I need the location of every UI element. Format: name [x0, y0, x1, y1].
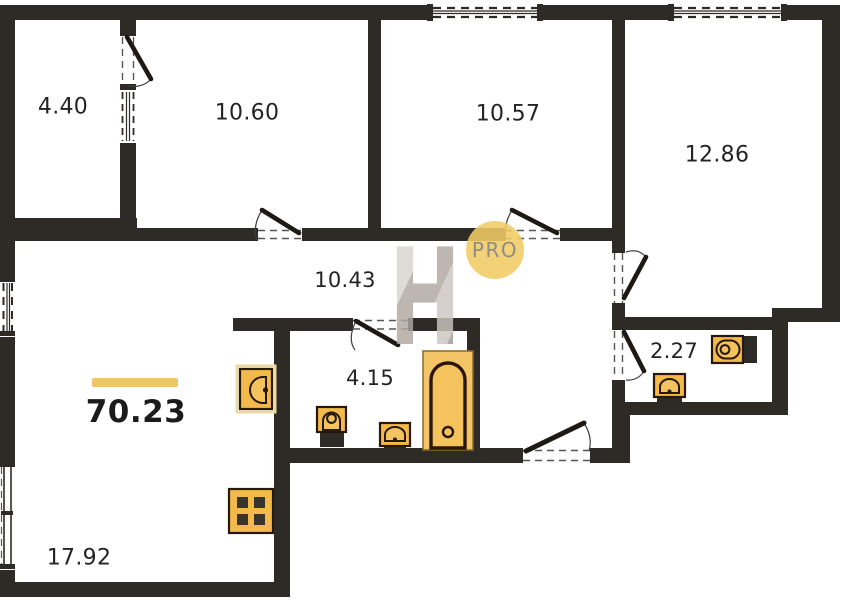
room-area-label-wc: 2.27 [650, 339, 698, 363]
window-icon [0, 462, 15, 569]
wc-washbasin-icon [712, 336, 757, 363]
stove-icon [229, 489, 273, 533]
pro-badge: PRO [466, 221, 524, 279]
window-icon [668, 4, 787, 21]
window-icon [123, 92, 134, 141]
washbasin-icon [380, 423, 410, 449]
pro-badge-label: PRO [472, 238, 518, 262]
room-area-label-living: 17.92 [47, 546, 111, 571]
door-icon [123, 37, 152, 86]
fixtures [229, 336, 757, 533]
door-icon [255, 210, 302, 240]
door-icon [615, 331, 645, 380]
room-area-label-bedroom-1: 10.60 [215, 101, 279, 126]
total-area-label: 70.23 [86, 394, 187, 430]
floor-plan: H 4.40 10.60 10.57 12.86 10.43 4.15 2.27… [0, 0, 843, 600]
room-area-label-loggia: 4.40 [38, 95, 88, 120]
entrance-door-icon [523, 423, 590, 461]
toilet-icon [317, 407, 346, 447]
room-area-label-bathroom: 4.15 [346, 366, 394, 390]
window-icon [0, 277, 15, 336]
wc-toilet-icon [654, 374, 685, 402]
window-icon [427, 4, 543, 21]
room-area-label-hallway: 10.43 [314, 268, 376, 292]
doors [123, 37, 647, 461]
total-area-accent-line [92, 378, 178, 387]
floor-plan-drawing: H [0, 0, 843, 600]
room-area-label-bedroom-3: 12.86 [685, 143, 749, 168]
kitchen-sink-icon [237, 366, 275, 412]
watermark-letter-h: H [389, 220, 461, 376]
room-area-label-bedroom-2: 10.57 [476, 102, 540, 127]
door-icon [615, 251, 647, 303]
